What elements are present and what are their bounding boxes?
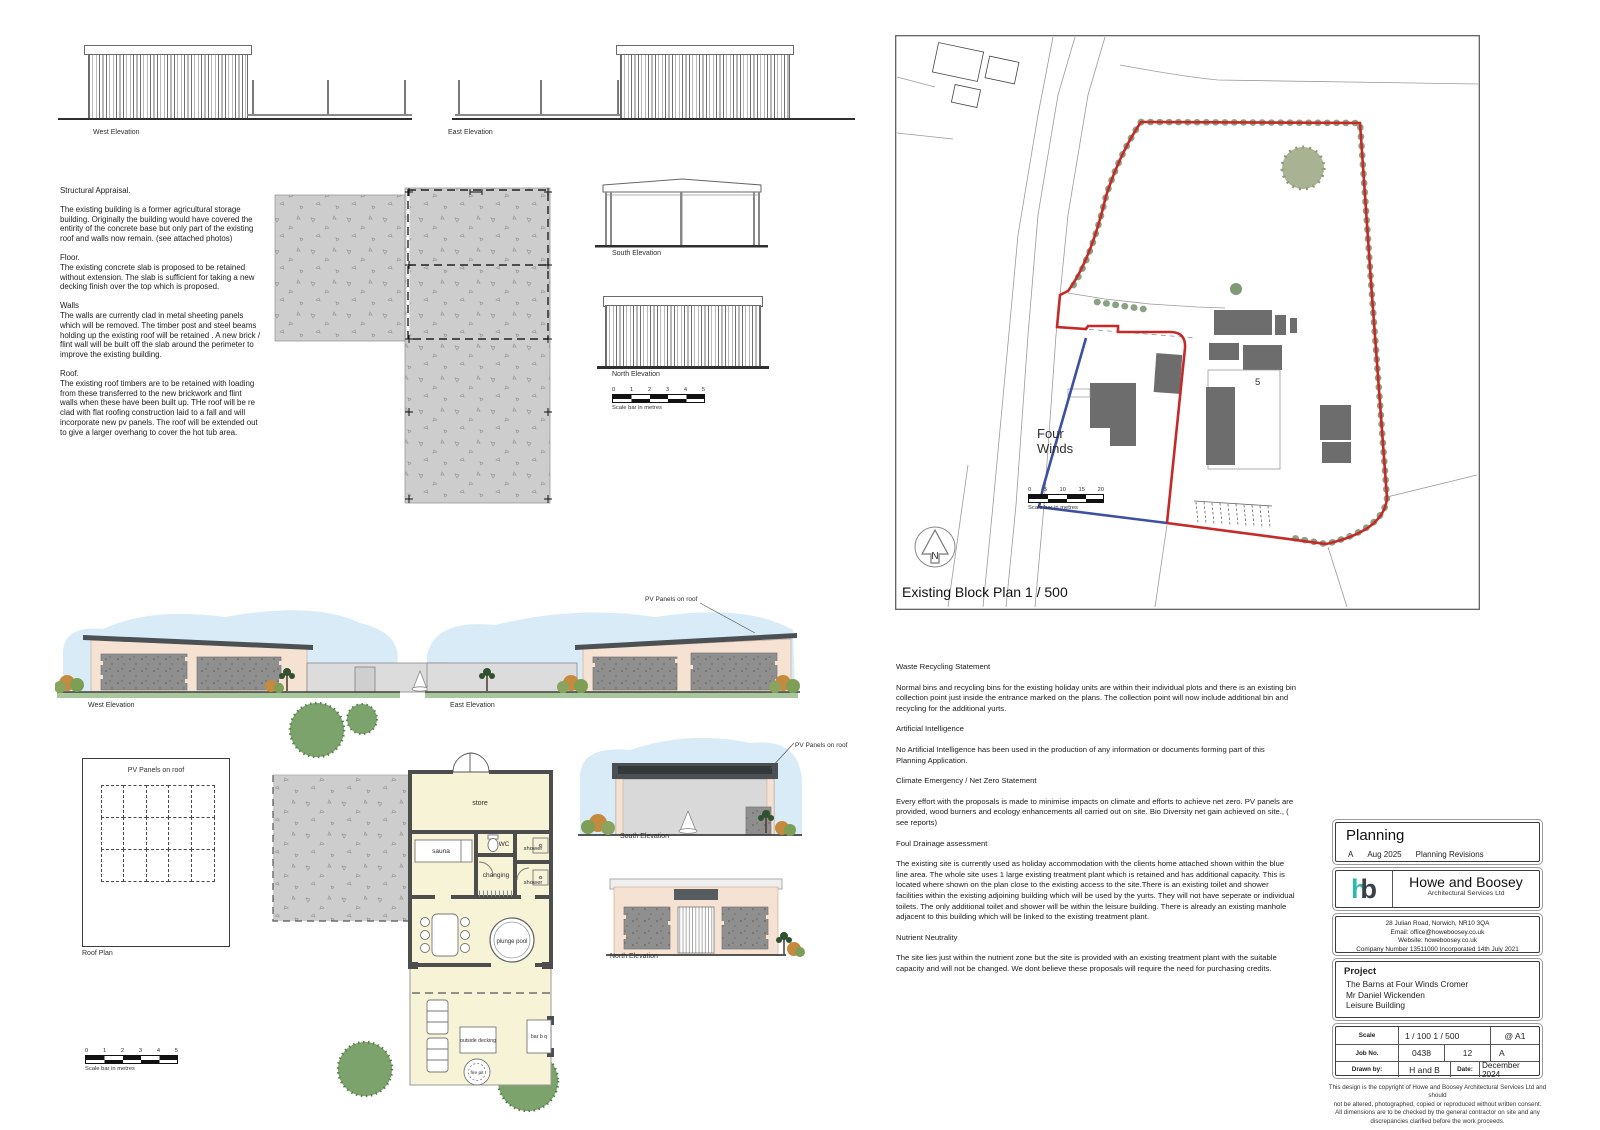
existing-block-plan: Four Winds 5 N bbox=[895, 35, 1480, 610]
room-label-plunge: plunge pool bbox=[496, 939, 527, 945]
room-label-shower1: shower bbox=[524, 846, 543, 852]
statement-heading: Artificial Intelligence bbox=[896, 724, 1296, 735]
revision-row: A Aug 2025 Planning Revisions bbox=[1336, 844, 1539, 859]
job-number: 0438 bbox=[1398, 1045, 1444, 1061]
pv-panels-label: PV Panels on roof bbox=[645, 596, 697, 603]
bushes bbox=[776, 932, 805, 957]
scale-bar-metres: 012345 Scale bar in metres bbox=[612, 387, 705, 411]
concrete-slab bbox=[275, 188, 550, 503]
copyright-disclaimer: This design is the copyright of Howe and… bbox=[1325, 1084, 1550, 1126]
scale-label: Scale bbox=[1336, 1027, 1398, 1044]
statement-heading: Nutrient Neutrality bbox=[896, 933, 1296, 944]
project-building: Leisure Building bbox=[1336, 1000, 1539, 1011]
statement-heading: Waste Recycling Statement bbox=[896, 662, 1296, 673]
north-arrow-icon: N bbox=[915, 527, 955, 567]
existing-slab-plan-drawing bbox=[270, 180, 560, 505]
titleblock-company-box: hb Howe and Boosey Architectural Service… bbox=[1335, 870, 1540, 908]
company-website: Website: howeboosey.co.uk bbox=[1336, 937, 1539, 946]
company-email: Email: office@howeboosey.co.uk bbox=[1336, 929, 1539, 938]
company-name: Howe and Boosey bbox=[1393, 874, 1539, 890]
roof-plan-pv-label: PV Panels on roof bbox=[83, 767, 229, 774]
date-value: December 2024 bbox=[1479, 1062, 1539, 1077]
block-plan-scale-bar: 05101520 Scale bar in metres bbox=[1028, 487, 1104, 511]
site-name-line2: Winds bbox=[1037, 441, 1074, 456]
plot-number: 5 bbox=[1255, 377, 1260, 388]
drawing-stage: Planning bbox=[1336, 823, 1539, 844]
roof-plan-drawing: PV Panels on roof bbox=[82, 758, 230, 947]
retained-concrete-slab bbox=[273, 775, 410, 921]
dining-table bbox=[421, 914, 470, 956]
roof-plan-label: Roof Plan bbox=[82, 950, 113, 957]
statement-heading: Foul Drainage assessment bbox=[896, 839, 1296, 850]
statement-body: Normal bins and recycling bins for the e… bbox=[896, 683, 1296, 715]
block-plan-title: Existing Block Plan 1 / 500 bbox=[902, 584, 1068, 600]
proposed-north-elevation-label: North Elevation bbox=[610, 953, 658, 960]
sheet-size: @ A1 bbox=[1490, 1027, 1539, 1044]
project-client: Mr Daniel Wickenden bbox=[1336, 990, 1539, 1001]
project-label: Project bbox=[1336, 962, 1539, 979]
company-number: Company Number 13511000 Incorporated 14t… bbox=[1336, 946, 1539, 955]
existing-south-elevation-drawing bbox=[595, 175, 770, 255]
room-label-shower2: shower bbox=[524, 880, 543, 886]
existing-west-elevation-label: West Elevation bbox=[93, 129, 140, 136]
room-label-store: store bbox=[472, 800, 488, 807]
room-label-firepit: fire pit bbox=[470, 1070, 484, 1076]
titleblock-address-box: 28 Julian Road, Norwich, NR10 3QA Email:… bbox=[1335, 916, 1540, 953]
statement-heading: Climate Emergency / Net Zero Statement bbox=[896, 776, 1296, 787]
company-logo-icon: hb bbox=[1336, 871, 1393, 907]
job-label: Job No. bbox=[1336, 1045, 1398, 1061]
proposed-south-north-elevations bbox=[570, 725, 810, 965]
room-label-barbq: bar b q bbox=[531, 1034, 547, 1040]
statement-body: Every effort with the proposals is made … bbox=[896, 797, 1296, 829]
statement-body: No Artificial Intelligence has been used… bbox=[896, 745, 1296, 766]
pv-panel-grid bbox=[101, 785, 214, 881]
drawing-sheet: { "existing": { "west_label": "West Elev… bbox=[0, 0, 1600, 1130]
existing-north-elevation-label: North Elevation bbox=[612, 371, 660, 378]
drawn-by-label: Drawn by: bbox=[1336, 1062, 1398, 1077]
statements-text: Waste Recycling Statement Normal bins an… bbox=[896, 662, 1296, 984]
room-label-wc: WC bbox=[499, 841, 510, 848]
site-name-line1: Four bbox=[1037, 426, 1064, 441]
structural-appraisal-text: Structural Appraisal. The existing build… bbox=[60, 186, 260, 447]
date-label: Date: bbox=[1450, 1062, 1479, 1077]
drawing-number: 12 bbox=[1444, 1045, 1490, 1061]
revision-letter: A bbox=[1490, 1045, 1539, 1061]
proposed-south-elevation-label: South Elevation bbox=[620, 833, 669, 840]
pv-panels-label-south: PV Panels on roof bbox=[795, 742, 847, 749]
existing-east-elevation-label: East Elevation bbox=[448, 129, 493, 136]
project-name: The Barns at Four Winds Cromer bbox=[1336, 979, 1539, 990]
company-subtitle: Architectural Services Ltd bbox=[1393, 890, 1539, 897]
drawn-by-value: H and B bbox=[1398, 1062, 1450, 1077]
statement-body: The site lies just within the nutrient z… bbox=[896, 953, 1296, 974]
small-tree bbox=[1230, 283, 1242, 295]
proposed-floor-plan: store sauna WC shower changing shower pl… bbox=[265, 700, 565, 1112]
titleblock-project-box: Project The Barns at Four Winds Cromer M… bbox=[1335, 961, 1540, 1018]
proposed-west-elevation-label: West Elevation bbox=[88, 702, 135, 709]
entrance-double-door bbox=[453, 753, 489, 772]
scale-value: 1 / 100 1 / 500 bbox=[1398, 1027, 1490, 1044]
company-address: 28 Julian Road, Norwich, NR10 3QA bbox=[1336, 920, 1539, 929]
svg-text:N: N bbox=[931, 551, 938, 562]
titleblock-info-table: Scale 1 / 100 1 / 500 @ A1 Job No. 0438 … bbox=[1335, 1026, 1540, 1076]
existing-south-elevation-label: South Elevation bbox=[612, 250, 661, 257]
proposed-west-east-elevations bbox=[55, 595, 800, 707]
floor-plan-scale-bar: 012345 Scale bar in metres bbox=[85, 1048, 178, 1072]
statement-body: The existing site is currently used as h… bbox=[896, 859, 1296, 923]
room-label-changing: changing bbox=[483, 872, 510, 879]
room-label-decking: outside decking bbox=[460, 1038, 496, 1044]
structural-title: Structural Appraisal. bbox=[60, 186, 260, 196]
proposed-north-elevation-drawing bbox=[606, 879, 805, 957]
ground bbox=[57, 692, 800, 698]
room-label-sauna: sauna bbox=[432, 848, 450, 855]
titleblock-stage-box: Planning A Aug 2025 Planning Revisions bbox=[1335, 822, 1540, 862]
